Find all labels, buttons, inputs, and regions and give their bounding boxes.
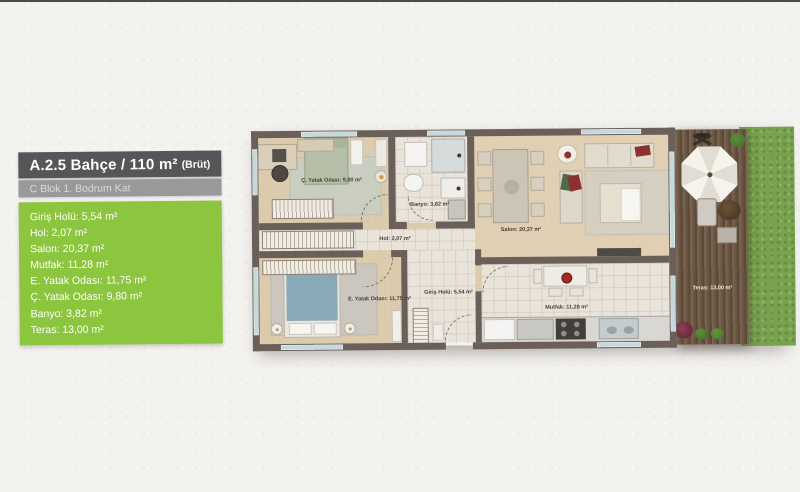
room-area-item: Salon: 20,37 m² <box>30 240 222 258</box>
window-parents-bedroom <box>253 267 259 335</box>
kitchen-chair <box>533 269 542 284</box>
content-wrapper: A.2.5 Bahçe / 110 m² (Brüt) C Blok 1. Bo… <box>0 0 800 492</box>
window-top-bath <box>427 130 465 135</box>
stool-detail <box>379 175 383 179</box>
side-table <box>557 144 577 163</box>
nightstand-left <box>271 323 283 335</box>
wall-hall-kitchen-lower <box>475 291 481 342</box>
kitchen-chair <box>548 288 562 297</box>
room-area-item: Giriş Holü: 5,54 m² <box>30 208 222 226</box>
dining-chair <box>530 151 544 165</box>
fridge <box>484 319 515 340</box>
terrace-sliding-door-salon <box>669 152 675 248</box>
label-bathroom: Banyo: 3,82 m² <box>410 202 449 208</box>
room-area-item: Ç. Yatak Odası: 9,80 m² <box>30 288 222 306</box>
sofa-red-throw <box>635 145 651 157</box>
window-child-bedroom <box>252 149 257 195</box>
window-bottom-bedroom <box>281 345 343 351</box>
unit-title-bar: A.2.5 Bahçe / 110 m² (Brüt) <box>18 151 221 179</box>
kitchen-chair <box>588 268 597 283</box>
sun-lounger <box>697 198 717 226</box>
shower <box>431 138 465 172</box>
bathroom-sink <box>440 177 465 198</box>
room-area-item: Hol: 2,07 m² <box>30 224 222 242</box>
wall-child-bedroom-bottom <box>259 222 363 230</box>
wall-outer-bottom-right <box>473 341 677 350</box>
wall-bath-bottom-right <box>436 221 475 228</box>
parents-bed <box>283 268 341 338</box>
umbrella-pole <box>707 172 712 177</box>
parents-bedroom-radiator <box>392 310 402 342</box>
washing-machine <box>404 142 427 167</box>
entry-mat <box>433 324 444 341</box>
dining-chair <box>478 203 492 217</box>
nightstand-left-detail <box>276 328 279 331</box>
desk-chair <box>271 165 288 182</box>
chaise-red-throw <box>567 174 582 191</box>
dining-table <box>492 149 529 223</box>
entrance-closet <box>413 308 429 344</box>
unit-title: A.2.5 Bahçe / 110 m² <box>29 155 177 173</box>
nightstand-right-detail <box>349 327 352 330</box>
shower-drain <box>457 153 461 157</box>
sink-faucet <box>457 186 461 190</box>
room-area-list: Giriş Holü: 5,54 m² Hol: 2,07 m² Salon: … <box>19 201 223 346</box>
unit-title-suffix: (Brüt) <box>182 157 211 171</box>
window-bottom-kitchen <box>597 342 641 347</box>
child-wardrobe <box>375 139 387 167</box>
parents-bed-duvet <box>286 271 337 321</box>
kitchen-chair <box>569 287 583 296</box>
stove <box>556 318 586 339</box>
screenshot-root: { "panel": { "title_main": "A.2.5 Bahçe … <box>0 0 800 489</box>
kitchen-table-flowers <box>561 272 572 283</box>
parents-bed-pillow-left <box>289 323 312 335</box>
floor-plan: Ç. Yatak Odası: 9,80 m² Banyo: 3,82 m² H… <box>251 125 796 354</box>
room-area-item: Mutfak: 11,28 m² <box>30 256 222 274</box>
terrace-door-kitchen <box>670 276 675 332</box>
sofa-cushion-divider <box>630 145 631 166</box>
daybed-tray <box>621 188 641 221</box>
wicker-table <box>718 200 741 220</box>
flower-bush <box>675 321 693 338</box>
wall-parents-bedroom-top <box>259 250 363 258</box>
sofa <box>584 143 654 169</box>
room-area-item: Banyo: 3,82 m² <box>31 304 223 322</box>
bathroom-cabinet <box>448 199 466 219</box>
toilet <box>403 174 423 192</box>
block-floor-label: C Blok 1. Bodrum Kat <box>18 179 221 198</box>
terrace-bush <box>730 133 745 147</box>
side-table-decor <box>564 152 571 159</box>
terrace-plant <box>695 328 708 339</box>
parents-bedroom-dresser <box>262 259 356 275</box>
nightstand-right <box>344 322 356 334</box>
corridor-cabinet <box>262 230 354 249</box>
label-child-bedroom: Ç. Yatak Odası: 9,80 m² <box>301 177 361 184</box>
wall-bath-bottom-left <box>396 222 407 229</box>
dining-chair <box>477 151 491 165</box>
window-top-child <box>301 131 357 136</box>
label-parents-bedroom: E. Yatak Odası: 11,75 m² <box>348 296 411 303</box>
wall-shelf <box>297 139 334 152</box>
label-terrace: Teras: 13,00 m² <box>693 285 733 291</box>
label-entrance-hall: Giriş Holü: 5,54 m² <box>424 289 473 295</box>
counter-segment <box>517 319 554 340</box>
daybed-ottoman <box>600 183 642 223</box>
corner-stool <box>374 170 387 183</box>
dining-chair <box>531 203 545 217</box>
room-area-item: E. Yatak Odası: 11,75 m² <box>30 272 222 290</box>
terrace-plant <box>711 328 724 339</box>
dining-chair <box>477 177 491 191</box>
child-bedroom-dresser <box>272 199 334 220</box>
child-bed-side-mat <box>350 139 363 165</box>
desk-computer <box>272 149 286 162</box>
label-salon: Salon: 20,37 m² <box>501 227 541 233</box>
kitchen-sink <box>599 318 639 339</box>
sofa-cushion-divider <box>607 145 608 166</box>
wall-bath-salon <box>467 136 475 228</box>
terrace-side-table <box>717 227 737 243</box>
chaise-chair <box>559 170 582 223</box>
parents-bed-pillow-right <box>314 323 337 335</box>
room-area-item: Teras: 13,00 m² <box>31 320 223 338</box>
kitchen-table <box>543 265 587 286</box>
window-top-salon <box>581 129 641 135</box>
dining-chair <box>530 177 544 191</box>
label-hall: Hol: 2,07 m² <box>379 236 410 242</box>
wall-bedroom-bath <box>388 137 396 229</box>
label-kitchen: Mutfak: 11,28 m² <box>545 304 588 310</box>
